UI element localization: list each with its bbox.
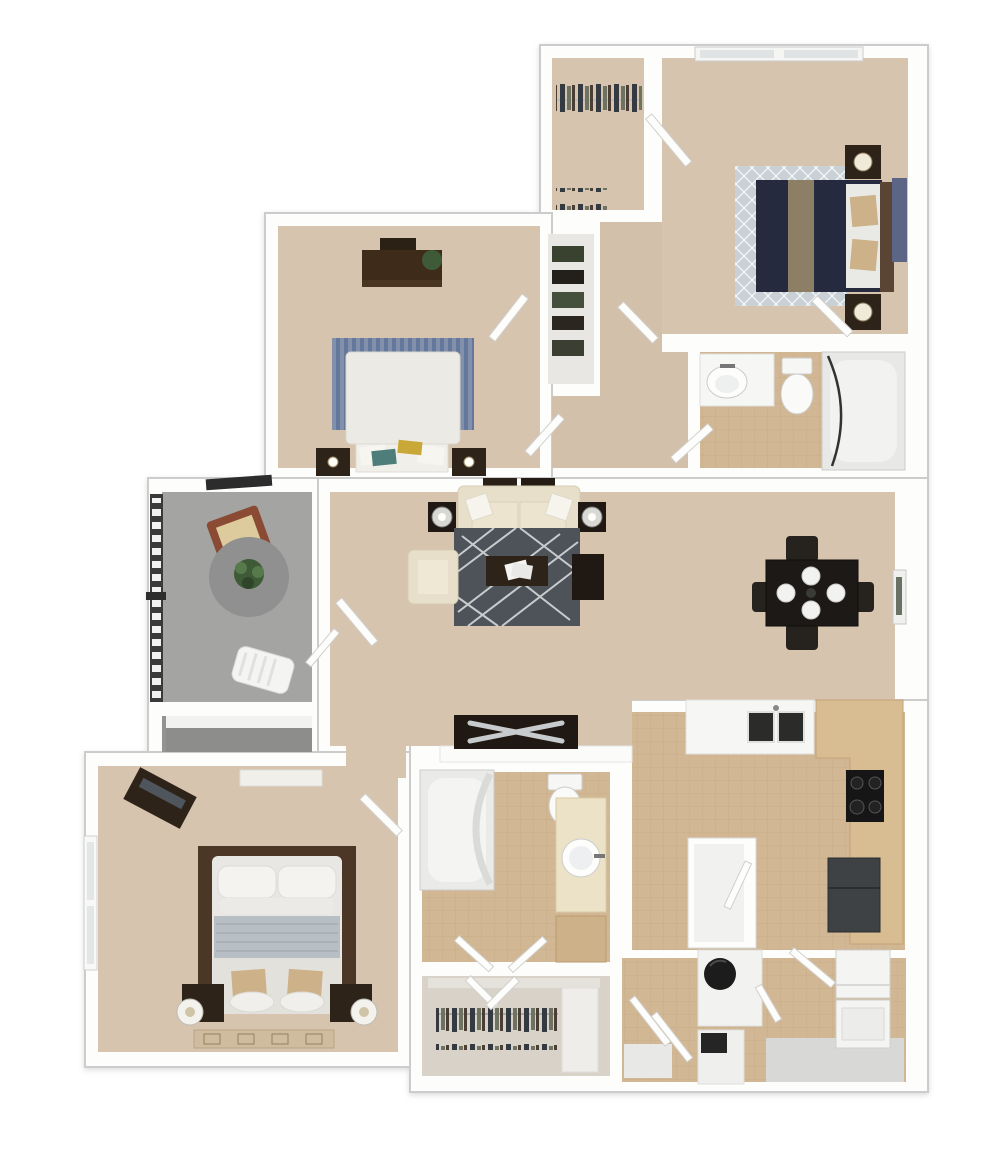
dining-chair [786,624,818,650]
table-lamp [854,153,872,171]
kitchen-sink [748,712,774,742]
foot-rug [194,1030,334,1048]
hanging-clothes-bottom [556,188,608,210]
plant-leaves [235,562,247,574]
place-setting [802,567,820,585]
water-heater [704,958,736,990]
hall-top-floor [600,222,662,468]
hanging-clothes [436,1008,558,1050]
stored-item [701,1033,727,1053]
floor-plan-rendering [0,0,1000,1153]
gray-blanket [214,916,340,960]
kitchen-faucet [773,705,779,711]
side-table [572,554,604,600]
headboard [880,182,894,292]
window-pane [87,906,94,964]
linen-item [552,340,584,356]
sink-basin [715,375,739,393]
blue-wall-hanging [892,178,907,262]
lamp-bulb [588,513,596,521]
railing-bracket [146,592,166,600]
window-pane [700,50,774,58]
accent-pillow [850,195,879,227]
place-setting [827,584,845,602]
dryer-door [842,1008,884,1040]
refrigerator [828,858,880,932]
linen-item [552,246,584,262]
place-setting [802,601,820,619]
bed-runner [788,180,814,292]
kitchen-sink [778,712,804,742]
water-heater-closet [698,950,762,1026]
lamp-center [359,1007,369,1017]
teal-pillow [371,449,396,466]
faucet [594,854,605,858]
linen-item [552,292,584,308]
storage-shelf [166,716,312,728]
lamp-center [185,1007,195,1017]
desk-shelf [362,280,442,287]
hall-lower-floor [552,396,600,468]
bed-pillow [278,866,336,898]
desk-plant [422,250,442,270]
closet-top-floor [552,58,644,210]
hall-floor-mat [624,1044,672,1078]
bolster-pillow [230,992,274,1012]
bolster-pillow [280,992,324,1012]
place-setting [777,584,795,602]
hanging-clothes-top [556,84,642,122]
window-pane [784,50,858,58]
bed-pillow [218,866,276,898]
storage-closet-interior [166,728,312,752]
desk-chair [380,238,416,251]
table-lamp [328,457,338,467]
closet-shelving [562,988,598,1072]
washer [836,950,890,998]
window-pane [87,842,94,900]
wardrobe-shelf [240,770,322,786]
armchair-seat [418,560,448,594]
table-lamp [854,303,872,321]
faucet [720,364,735,368]
lamp-bulb [438,513,446,521]
toilet-tank [782,358,812,374]
dining-chair [786,536,818,562]
plant-leaves [252,566,264,578]
linen-cabinet [556,916,606,962]
floor-plan-page [0,0,1000,1153]
entry-door-inset [896,577,902,615]
table-lamp [464,457,474,467]
yellow-pillow [397,440,422,455]
bed-duvet [346,352,460,444]
linen-item [552,316,584,330]
plant-leaves [242,577,254,589]
accent-pillow [850,239,879,271]
linen-item [552,270,584,284]
sink-basin [569,846,593,870]
bed-pillow-row [220,898,334,914]
toilet-bowl [781,374,813,414]
table-centerpiece [806,588,816,598]
